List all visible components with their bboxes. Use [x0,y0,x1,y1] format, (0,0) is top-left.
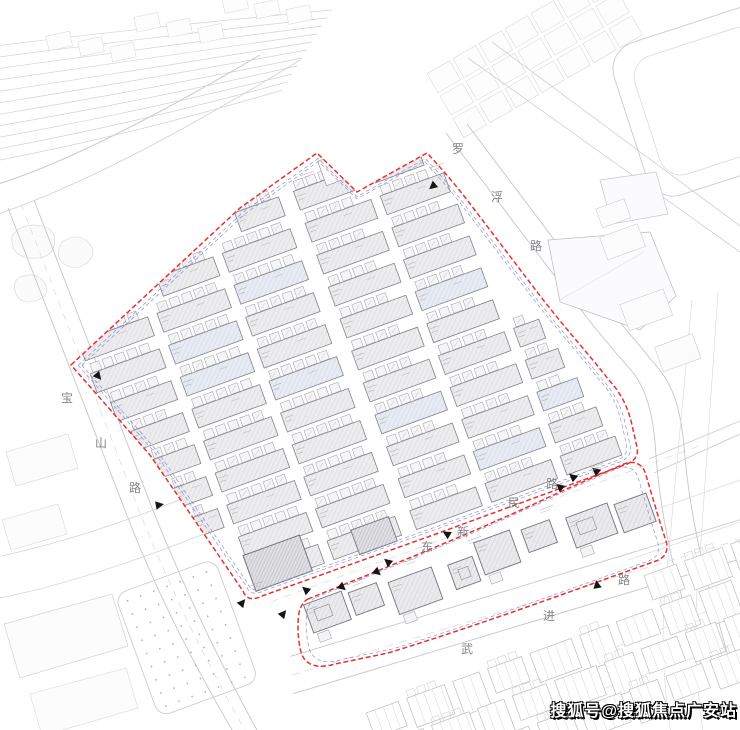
road-label-char-northeast-1: 浮 [491,190,503,204]
road-label-char-central-0: 东 [421,540,433,554]
park-blob [12,225,55,258]
road-label-char-south-2: 路 [618,572,630,587]
road-label-char-northeast-0: 罗 [452,142,464,156]
road-label-char-west-2: 路 [129,480,141,495]
road-label-char-west-1: 山 [95,436,107,450]
road-label-char-northeast-2: 路 [530,238,542,253]
road-label-char-central-3: 路 [546,476,558,491]
road-label-char-west-0: 宝 [61,391,73,405]
watermark: 搜狐号@搜狐焦点广安站 [550,697,737,721]
road-label-char-central-1: 新 [457,524,469,539]
site-plan: 宝山路罗浮路东新民路武进路 搜狐号@搜狐焦点广安站 [0,0,740,730]
road-label-char-central-2: 民 [508,496,520,510]
site-plan-svg: 宝山路罗浮路东新民路武进路 [0,0,740,730]
road-label-char-south-0: 武 [461,642,473,656]
road-label-char-south-1: 进 [543,609,555,623]
